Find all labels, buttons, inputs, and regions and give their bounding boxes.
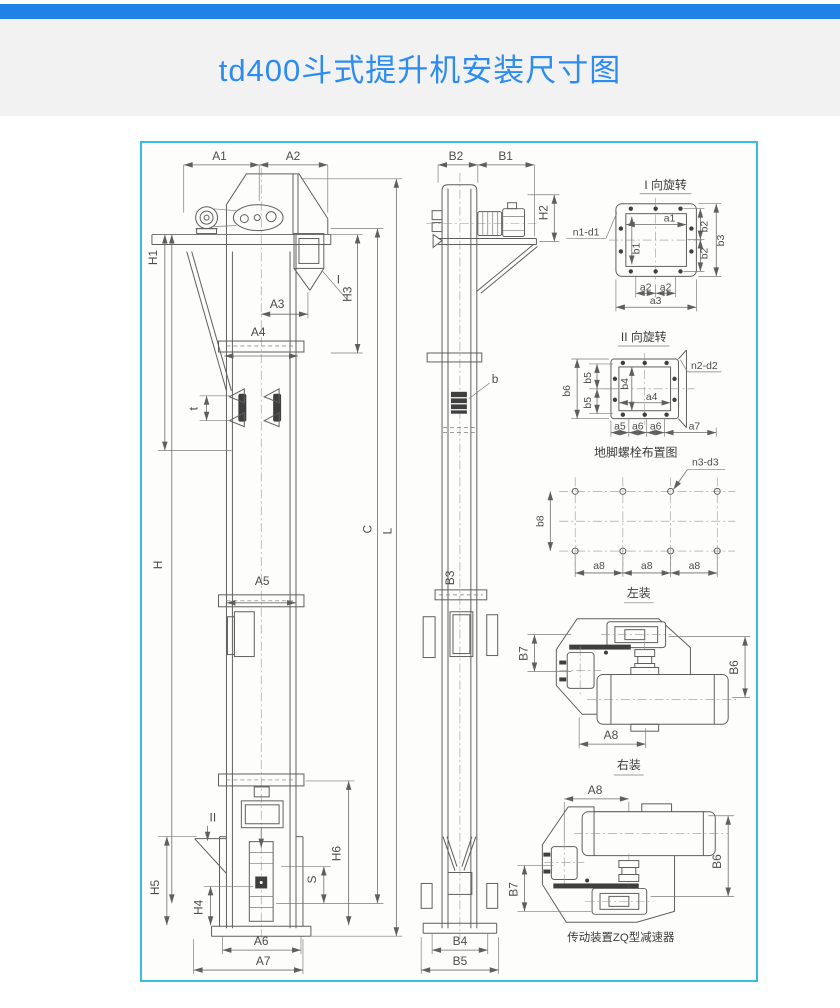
detail-rotation-i: I 向旋转 a1 b1 b2 b2 b3 a2 a2 — [566, 178, 727, 311]
dim-n3d3: n3-d3 — [692, 457, 719, 468]
drive-unit-caption: 传动装置ZQ型减速器 — [567, 930, 675, 944]
dim-lm-b6: B6 — [727, 660, 741, 675]
dim-h: H — [151, 561, 165, 570]
dim-det1-n1d1: n1-d1 — [573, 228, 600, 239]
dim-a8-2: a8 — [641, 561, 653, 572]
section-marker-ii: II — [210, 811, 217, 825]
detail-i-title: I 向旋转 — [644, 178, 686, 192]
dim-h1: H1 — [146, 249, 160, 265]
dim-det1-a3: a3 — [650, 296, 662, 307]
dim-h5: H5 — [148, 879, 162, 895]
dim-h6: H6 — [330, 846, 344, 862]
right-mount-view: 右装 A8 B6 B7 传动装置ZQ型减速器 — [507, 758, 735, 944]
dim-b: b — [492, 372, 499, 386]
left-mount-view: 左装 B7 B6 A8 — [516, 586, 750, 748]
dim-b5: B5 — [453, 954, 468, 968]
side-boot — [421, 837, 498, 934]
header-band: td400斗式提升机安装尺寸图 — [0, 19, 840, 116]
dim-det2-b6: b6 — [562, 385, 573, 397]
top-accent-bar — [0, 4, 840, 19]
dim-s: S — [305, 875, 319, 883]
left-mount-title: 左装 — [627, 586, 651, 600]
dim-b4: B4 — [453, 934, 468, 948]
head-section — [226, 174, 327, 235]
dim-lm-b7: B7 — [516, 646, 530, 661]
dim-det1-a2-left: a2 — [640, 282, 652, 293]
dim-b3: B3 — [443, 570, 457, 585]
discharge-spout — [294, 234, 324, 291]
dim-det2-a7: a7 — [689, 422, 701, 433]
detail-ii-title: II 向旋转 — [621, 330, 667, 344]
dim-a1: A1 — [212, 149, 227, 163]
anchor-plan-title: 地脚螺栓布置图 — [594, 445, 677, 459]
boot-section — [195, 828, 311, 936]
dim-det2-b4: b4 — [620, 378, 631, 390]
inspection-window-lower — [241, 801, 283, 828]
dim-t: t — [187, 406, 201, 410]
dim-det2-a4: a4 — [646, 392, 658, 403]
dim-det2-a6-left: a6 — [632, 422, 644, 433]
dim-l: L — [380, 527, 394, 534]
drawing-frame: I — [140, 141, 758, 982]
dim-det2-b5-upper: b5 — [583, 372, 594, 384]
dim-a6: A6 — [254, 934, 269, 948]
detail-rotation-ii: II 向旋转 b4 a4 b5 b5 b6 — [562, 330, 721, 437]
dim-a4: A4 — [251, 325, 266, 339]
side-door — [450, 612, 473, 657]
inspection-door-mid — [234, 612, 254, 657]
front-view: I — [146, 149, 402, 974]
head-drive-unit — [196, 205, 283, 234]
dim-rm-b6: B6 — [710, 854, 724, 869]
dim-a2: A2 — [286, 149, 301, 163]
right-mount-title: 右装 — [617, 758, 641, 772]
dim-h2: H2 — [536, 205, 550, 221]
dim-b2: B2 — [449, 149, 464, 163]
dim-lm-a8: A8 — [604, 728, 619, 742]
dim-det2-b5-lower: b5 — [583, 397, 594, 409]
dim-h3: H3 — [341, 286, 355, 302]
dim-a8-1: a8 — [593, 561, 605, 572]
dim-det1-a1: a1 — [664, 214, 676, 225]
dim-det1-a2-right: a2 — [660, 282, 672, 293]
dim-det1-b3: b3 — [716, 235, 727, 247]
dim-c: C — [361, 524, 375, 533]
elevator-dimension-drawing: I — [142, 143, 756, 980]
side-view: b B3 B2 — [421, 149, 559, 974]
anchor-bolt-plan: 地脚螺栓布置图 b8 a8 a8 a8 n3-d3 — [535, 445, 735, 576]
dim-det1-b2-lower: b2 — [699, 247, 710, 259]
section-marker-i: I — [337, 272, 340, 286]
dim-det1-b1: b1 — [632, 242, 643, 254]
buckets-cutaway — [229, 389, 281, 427]
dim-det2-a5: a5 — [614, 422, 626, 433]
dim-det1-b2-upper: b2 — [699, 221, 710, 233]
dim-a7: A7 — [256, 954, 271, 968]
dim-a3: A3 — [270, 297, 285, 311]
dim-a8-3: a8 — [689, 561, 701, 572]
dim-rm-b7: B7 — [507, 882, 521, 897]
page-title: td400斗式提升机安装尺寸图 — [219, 45, 622, 90]
dim-b1: B1 — [498, 149, 513, 163]
dim-a5: A5 — [255, 574, 270, 588]
dim-b8: b8 — [535, 515, 546, 527]
dim-det2-n2d2: n2-d2 — [691, 361, 718, 372]
head-platform — [152, 235, 331, 245]
dim-rm-a8: A8 — [588, 783, 603, 797]
side-drive-unit — [478, 203, 525, 237]
dim-h4: H4 — [192, 899, 206, 915]
dim-det2-a6-right: a6 — [650, 422, 662, 433]
